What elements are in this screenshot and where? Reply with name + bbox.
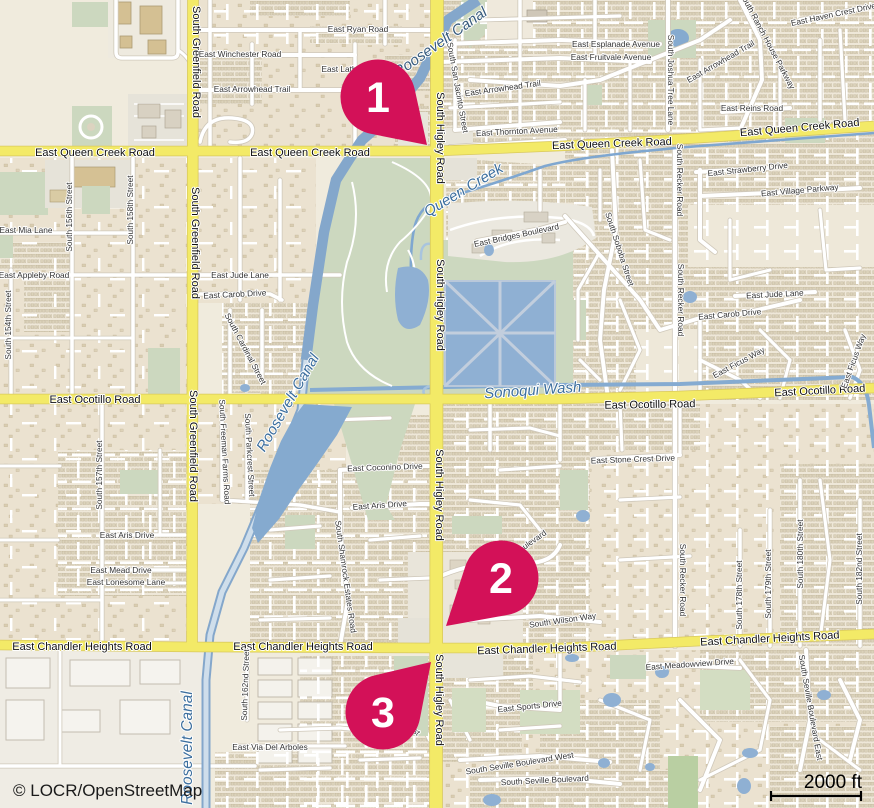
svg-text:3: 3 [371,689,395,737]
svg-text:East Mia Lane: East Mia Lane [0,225,53,235]
svg-text:South Higley Road: South Higley Road [434,259,446,351]
svg-text:East Appleby Road: East Appleby Road [0,270,70,280]
svg-text:1: 1 [366,74,390,122]
svg-text:South 156th Street: South 156th Street [64,182,74,252]
svg-text:South Recker Road: South Recker Road [676,264,686,337]
svg-text:South Recker Road: South Recker Road [675,144,685,217]
svg-text:East Mead Drive: East Mead Drive [90,565,152,575]
svg-text:South Higley Road: South Higley Road [434,92,446,184]
svg-text:South Greenfield Road: South Greenfield Road [190,6,202,118]
svg-text:South Higley Road: South Higley Road [433,654,445,746]
svg-text:East Lonesome Lane: East Lonesome Lane [87,577,166,587]
svg-text:South 180th Street: South 180th Street [795,519,805,589]
svg-text:East Reins Road: East Reins Road [721,103,784,113]
svg-text:East Ocotillo Road: East Ocotillo Road [604,398,695,412]
svg-text:East Chandler Heights Road: East Chandler Heights Road [233,641,372,653]
svg-text:East Chandler Heights Road: East Chandler Heights Road [12,641,151,653]
svg-text:South Joshua Tree Lane: South Joshua Tree Lane [666,35,676,126]
svg-text:East Winchester Road: East Winchester Road [199,49,282,59]
svg-text:South Greenfield Road: South Greenfield Road [189,187,201,299]
svg-text:East Via Del Arboles: East Via Del Arboles [232,742,307,752]
svg-text:South Recker Road: South Recker Road [678,544,688,617]
svg-text:East Aris Drive: East Aris Drive [100,530,155,540]
svg-text:East Ocotillo Road: East Ocotillo Road [49,394,140,406]
svg-text:East Arrowhead Trail: East Arrowhead Trail [214,84,291,94]
svg-text:South 154th Street: South 154th Street [3,290,13,360]
svg-text:South Greenfield Road: South Greenfield Road [187,390,199,502]
svg-text:East Esplanade Avenue: East Esplanade Avenue [572,39,660,49]
svg-text:East Queen Creek Road: East Queen Creek Road [250,147,370,159]
svg-text:South 178th Street: South 178th Street [734,560,744,630]
svg-text:© LOCR/OpenStreetMap: © LOCR/OpenStreetMap [13,781,202,800]
svg-text:South Higley Road: South Higley Road [433,449,445,541]
svg-text:East Jude Lane: East Jude Lane [211,270,269,280]
svg-text:East Ryan Road: East Ryan Road [328,24,389,34]
svg-text:South 179th Street: South 179th Street [763,549,773,619]
svg-text:South 157th Street: South 157th Street [94,440,104,510]
svg-text:East Queen Creek Road: East Queen Creek Road [35,147,155,159]
svg-text:South 182nd Street: South 182nd Street [854,533,864,605]
svg-text:South 158th Street: South 158th Street [125,175,135,245]
svg-text:2: 2 [489,555,513,603]
svg-text:2000 ft: 2000 ft [804,772,863,793]
svg-text:East Fruitvale Avenue: East Fruitvale Avenue [571,52,652,62]
